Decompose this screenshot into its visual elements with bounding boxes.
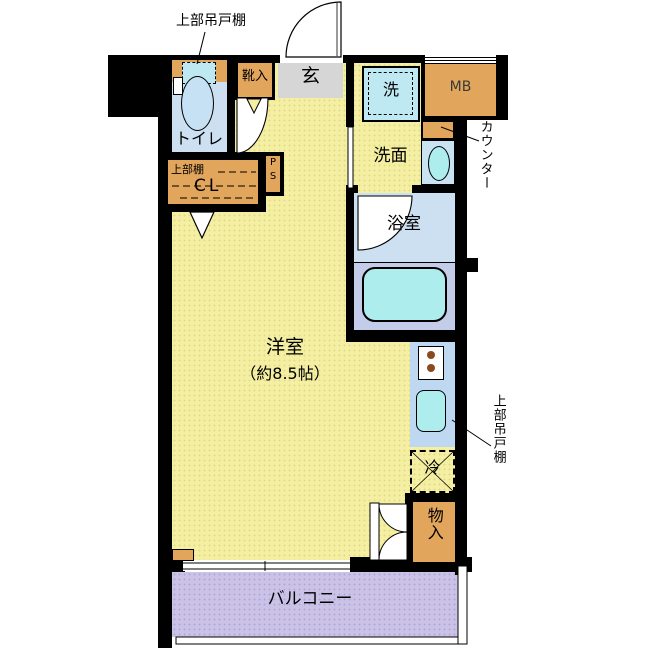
upper-cabinet-top-label: 上部吊戸棚 <box>176 14 260 29</box>
wall-washroom-partition <box>346 55 354 127</box>
wall-pillar-topleft <box>108 55 172 117</box>
meter-box-label: MB <box>425 80 496 95</box>
bathroom-label: 浴室 <box>364 216 444 234</box>
wall-top-washroom <box>355 55 425 63</box>
main-room-size-label: （約8.5帖） <box>215 366 355 383</box>
main-room-label: 洋室 <box>225 338 345 358</box>
wall-bath-bottom <box>346 330 467 342</box>
small-counter-bottom-left <box>172 549 194 561</box>
pipe-space-label-p: P <box>266 158 280 169</box>
fridge-label: 冷 <box>410 460 455 477</box>
wall-bath-left <box>346 193 354 342</box>
kitchen-sink <box>416 390 446 432</box>
wall-bath-top-left <box>346 185 358 193</box>
counter-box <box>421 120 455 140</box>
shoe-cabinet-label: 靴入 <box>235 70 275 84</box>
entrance-door-swing <box>286 2 341 57</box>
wall-right-tab <box>467 258 478 272</box>
washer-label: 洗 <box>362 82 420 99</box>
wall-bath-top-right <box>412 185 455 193</box>
balcony-label: バルコニー <box>230 591 390 609</box>
closet-label: CL <box>194 178 221 196</box>
toilet-label: トイレ <box>167 131 231 148</box>
pipe-space-label-s: S <box>266 172 280 183</box>
floor-plan: 上部吊戸棚 靴入 玄 洗 MB カウンター トイレ 上部棚 CL P S 洗面 … <box>0 0 650 650</box>
upper-cabinet-right-label: 上部吊戸棚 <box>491 394 505 486</box>
closet-shelf-label: 上部棚 <box>171 164 204 176</box>
bathtub <box>362 267 447 322</box>
counter-label: カウンター <box>478 120 492 224</box>
vanity-basin <box>428 146 450 181</box>
stove-burner-2 <box>427 364 435 372</box>
toilet-bowl <box>181 76 214 131</box>
stove-burner-1 <box>427 351 435 359</box>
balcony-edge-right <box>458 566 467 644</box>
balcony-edge-bottom <box>176 637 458 644</box>
storage-label: 物入 <box>425 507 442 559</box>
washroom-label: 洗面 <box>353 148 428 166</box>
balcony-window <box>183 561 350 571</box>
entrance-label: 玄 <box>278 67 343 87</box>
